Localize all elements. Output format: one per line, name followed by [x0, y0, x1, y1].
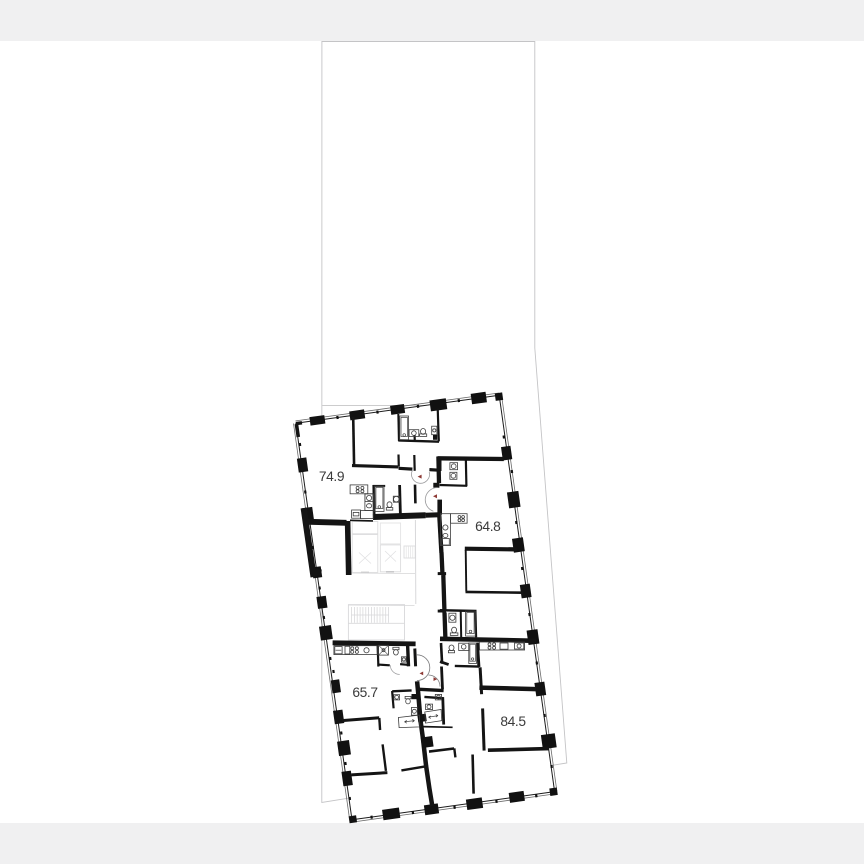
svg-text:74.9: 74.9	[319, 469, 345, 484]
svg-text:65.7: 65.7	[352, 685, 377, 700]
svg-text:84.5: 84.5	[500, 714, 526, 729]
svg-text:64.8: 64.8	[475, 519, 501, 534]
